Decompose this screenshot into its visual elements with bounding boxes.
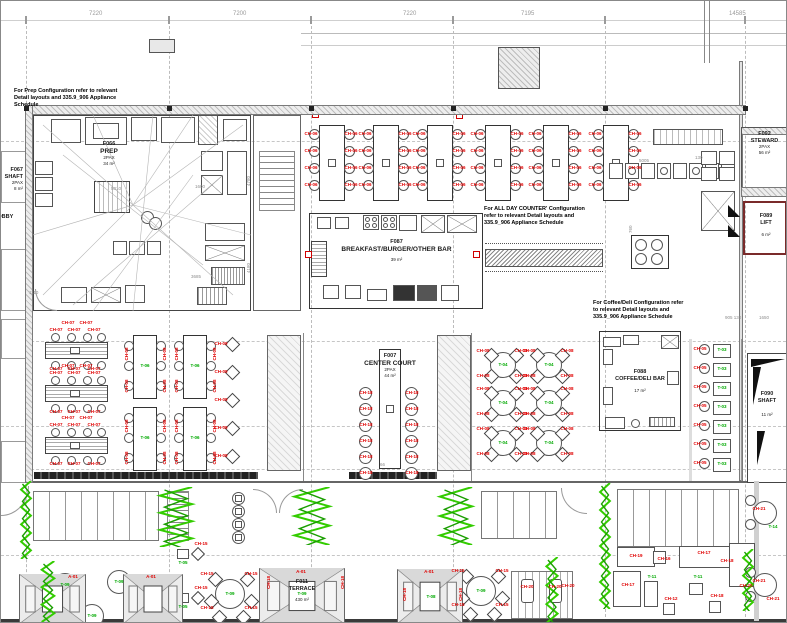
- chair-label-ch08: CH-08: [557, 452, 577, 457]
- chair-label-ch07: CH-07: [47, 328, 65, 333]
- chair-label-ch08: CH-08: [163, 347, 168, 361]
- plant: [287, 487, 337, 545]
- room-area: 56 m²: [742, 150, 787, 155]
- table-label-t03: T-03: [714, 386, 730, 391]
- chair-label-ch07: CH-07: [85, 328, 103, 333]
- chair-label-ch20: CH-20: [516, 585, 538, 590]
- edge-round-table: [753, 573, 777, 597]
- left-room: [1, 319, 27, 359]
- grid-line-horizontal: [1, 469, 786, 470]
- chair-label-ch21: CH-21: [749, 579, 769, 584]
- table-label-t04: T-04: [538, 441, 560, 446]
- bb-burner: [372, 223, 377, 228]
- kitchen-box: [719, 167, 735, 181]
- table-label-t14: T-14: [765, 525, 781, 530]
- bb-equip: [367, 289, 387, 301]
- kitchen-box: [701, 151, 717, 165]
- chair-label-ch18: CH-18: [356, 407, 376, 412]
- cooktop-burner: [651, 253, 663, 265]
- line: [29, 481, 747, 483]
- chair-label-ch06: CH-06: [507, 166, 527, 171]
- chair: [67, 428, 76, 437]
- room-label-terrace: F011 TERRACE T-09 430 m²: [267, 579, 337, 602]
- chair: [156, 433, 166, 443]
- door-arc: [253, 489, 277, 513]
- chair-label-ch06: CH-06: [585, 166, 605, 171]
- chair-label-ch05: CH-05: [691, 366, 709, 371]
- edge-round-table: [753, 501, 777, 525]
- chair-label-ch07: CH-07: [47, 462, 65, 467]
- note-coffee-deli: For Coffee/Deli Configuration refer to r…: [593, 300, 687, 321]
- dimension-annotation: 905 130: [725, 316, 741, 321]
- bb-xbox: [421, 215, 445, 233]
- chair-label-ch08: CH-08: [473, 427, 493, 432]
- chair-label-ch08: CH-08: [163, 419, 168, 433]
- chair-label-ch08: CH-08: [473, 412, 493, 417]
- table-label-t04: T-04: [538, 401, 560, 406]
- chair-label-ch21: CH-21: [763, 597, 783, 602]
- table-label-t09: T-09: [83, 614, 101, 619]
- serving-counter: [485, 249, 603, 267]
- chair-label-ch08: CH-08: [473, 374, 493, 379]
- kitchen-pass: [653, 129, 723, 145]
- column-marker: [167, 106, 172, 111]
- left-room: [1, 249, 27, 311]
- terrace-small-table: [177, 549, 189, 559]
- chair-label-ch08: CH-08: [125, 451, 130, 465]
- table-label-t03: T-03: [714, 367, 730, 372]
- counter-table-leg: [328, 159, 336, 167]
- awning-pyramid: [123, 574, 183, 623]
- chair-label-ch07: CH-07: [77, 321, 95, 326]
- chair-label-ch15: CH-15: [196, 572, 218, 577]
- planter: [267, 335, 301, 471]
- chair-label-ch18: CH-18: [341, 579, 346, 589]
- dim-top-2: 7200: [233, 11, 246, 17]
- chair-label-ch09: CH-09: [213, 398, 229, 403]
- room-label-shaft-right: F090 SHAFT 11 m²: [748, 391, 786, 418]
- room-name: CENTER COURT: [347, 360, 433, 368]
- room-name: SHAFT: [748, 398, 786, 405]
- chair-label-ch06: CH-06: [409, 183, 429, 188]
- room-label-coffee-deli: F088 COFFEE/DELI BAR 17 m²: [601, 369, 679, 394]
- chair-label-ch18: CH-18: [402, 455, 422, 460]
- dim-top-5: 14585: [729, 11, 746, 17]
- table-label-t11: T-11: [689, 575, 707, 580]
- column-marker: [603, 106, 608, 111]
- table-label-t11: T-11: [643, 575, 661, 580]
- bb-xbox: [447, 215, 477, 233]
- chair-label-ch06: CH-06: [565, 166, 585, 171]
- bb-equip: [345, 285, 361, 299]
- chair-label-ch07: CH-07: [77, 416, 95, 421]
- table-label-t08: T-08: [423, 595, 439, 600]
- table-label-t03: T-03: [714, 424, 730, 429]
- chair-label-ch15: CH-15: [447, 603, 469, 608]
- chair-label-ch08: CH-08: [125, 379, 130, 393]
- bb-burner: [383, 223, 388, 228]
- chair-label-ch18: CH-18: [459, 591, 464, 601]
- awning-label-a01: A-01: [291, 570, 311, 575]
- chair-label-ch07: CH-07: [59, 416, 77, 421]
- chair-label-ch18: CH-18: [356, 439, 376, 444]
- chair-label-ch18: CH-18: [356, 455, 376, 460]
- awning-label-a01: A-01: [63, 575, 83, 580]
- room-id: F066: [83, 141, 135, 148]
- dimension-annotation: 5010: [111, 187, 121, 192]
- chair-label-ch06: CH-06: [525, 183, 545, 188]
- chair-label-ch06: CH-06: [409, 149, 429, 154]
- chair-label-ch08: CH-08: [519, 374, 539, 379]
- chair-label-ch18: CH-18: [356, 391, 376, 396]
- dimension-annotation: 1650: [759, 316, 769, 321]
- room-id: F092: [742, 131, 787, 138]
- table-label-t05: T-05: [175, 561, 191, 566]
- line: [310, 16, 312, 24]
- bb-equip: [335, 217, 349, 229]
- chair-label-ch18: CH-18: [402, 439, 422, 444]
- room-id: F087: [319, 239, 474, 246]
- planter: [437, 335, 471, 471]
- bb-coffee-machine: [393, 285, 415, 301]
- chair-label-ch19: CH-19: [625, 554, 647, 559]
- chair-label-ch06: CH-06: [585, 149, 605, 154]
- kitchen-burner: [692, 167, 700, 175]
- table-label-t04: T-04: [492, 401, 514, 406]
- lounge-stool: [709, 601, 721, 613]
- chair-label-ch07: CH-07: [47, 410, 65, 415]
- door-arc: [561, 488, 587, 514]
- chair-label-ch07: CH-07: [85, 462, 103, 467]
- chair-label-ch07: CH-07: [65, 371, 83, 376]
- chair-label-ch18: CH-18: [356, 471, 376, 476]
- chair-label-ch07: CH-07: [59, 364, 77, 369]
- chair-label-ch06: CH-06: [507, 132, 527, 137]
- chair-label-ch08: CH-08: [519, 412, 539, 417]
- chair-label-ch06: CH-06: [565, 149, 585, 154]
- chair-label-ch08: CH-08: [175, 347, 180, 361]
- bb-equip: [441, 285, 459, 301]
- chair-label-ch08: CH-08: [557, 412, 577, 417]
- chair-label-ch06: CH-06: [467, 132, 487, 137]
- dim-top-1: 7220: [89, 11, 102, 17]
- chair-label-ch06: CH-06: [409, 132, 429, 137]
- line: [303, 333, 304, 481]
- chair-label-ch06: CH-06: [449, 149, 469, 154]
- chair-label-ch06: CH-06: [507, 183, 527, 188]
- chair-label-ch06: CH-06: [355, 132, 375, 137]
- chair-label-ch06: CH-06: [301, 183, 321, 188]
- room-area: 11 m²: [748, 412, 786, 417]
- bb-burner: [383, 217, 388, 222]
- cd-equip: [603, 337, 621, 347]
- table-label-t09: T-09: [56, 583, 74, 588]
- chair-label-ch06: CH-06: [565, 132, 585, 137]
- chair: [83, 333, 92, 342]
- cd-equip: [605, 417, 625, 429]
- chair-label-ch20: CH-20: [736, 584, 756, 589]
- room-area: 17 m²: [601, 388, 679, 393]
- dimension-annotation: 3685: [191, 275, 201, 280]
- chair-label-ch08: CH-08: [557, 387, 577, 392]
- room-area: 8 m²: [0, 186, 23, 191]
- room-name: LIFT: [747, 220, 785, 227]
- room-id: F007: [347, 353, 433, 360]
- chair-label-ch07: CH-07: [47, 371, 65, 376]
- chair-label-ch05: CH-05: [691, 347, 709, 352]
- red-marker: [473, 251, 480, 258]
- chair: [83, 428, 92, 437]
- planter-pot-inner: [235, 534, 242, 541]
- room-name: STEWARD: [742, 138, 787, 145]
- line: [168, 16, 170, 24]
- chair-label-ch06: CH-06: [625, 132, 645, 137]
- room-name: SHAFT: [0, 174, 23, 181]
- line: [1, 20, 787, 21]
- line: [25, 16, 27, 24]
- room-label-lift: F089 LIFT 6 m²: [747, 213, 785, 238]
- chair-label-ch06: CH-06: [301, 166, 321, 171]
- lounge-stool: [663, 603, 675, 615]
- chair-label-ch06: CH-06: [467, 166, 487, 171]
- room-name: PREP: [83, 148, 135, 156]
- bb-burner: [390, 217, 395, 222]
- dimension-annotation: 760: [629, 225, 634, 233]
- table-label-t04: T-04: [492, 441, 514, 446]
- chair: [67, 376, 76, 385]
- line: [689, 339, 692, 481]
- chair-label-ch07: CH-07: [65, 423, 83, 428]
- chair-label-ch06: CH-06: [449, 183, 469, 188]
- chair: [83, 376, 92, 385]
- chair-label-ch08: CH-08: [473, 387, 493, 392]
- chair-label-ch08: CH-08: [473, 349, 493, 354]
- room-label-prep: F066 PREP 2PAX 34 m²: [83, 141, 135, 166]
- room-id: F088: [601, 369, 679, 376]
- plant: [153, 487, 199, 547]
- chair-label-ch06: CH-06: [625, 166, 645, 171]
- table-label-t04: T-04: [492, 363, 514, 368]
- chair-label-ch09: CH-09: [213, 454, 229, 459]
- chair-label-ch15: CH-15: [240, 572, 262, 577]
- room-id: F011: [267, 579, 337, 586]
- room-area: 430 m²: [267, 597, 337, 602]
- table-label-t06: T-06: [186, 436, 204, 441]
- shaft-wedge: [757, 431, 765, 465]
- counter-table-leg: [436, 159, 444, 167]
- chair-label-ch07: CH-07: [85, 423, 103, 428]
- bb-equip: [317, 217, 331, 229]
- chair-label-ch08: CH-08: [519, 387, 539, 392]
- cd-equip: [623, 335, 639, 345]
- chair-label-ch06: CH-06: [355, 149, 375, 154]
- line: [301, 45, 787, 46]
- chair-label-ch09: CH-09: [213, 342, 229, 347]
- chair-label-ch06: CH-06: [625, 149, 645, 154]
- chair-label-ch07: CH-07: [59, 321, 77, 326]
- table-label-t04: T-04: [538, 363, 560, 368]
- chair: [97, 428, 106, 437]
- cd-equip: [603, 349, 613, 365]
- room-name: BREAKFAST/BURGER/OTHER BAR: [319, 246, 474, 254]
- cd-xbox: [661, 335, 679, 349]
- line: [741, 339, 742, 481]
- chair: [745, 495, 756, 506]
- facade-wall-dark: [34, 472, 258, 479]
- cd-equip: [649, 417, 675, 427]
- chair-label-ch05: CH-05: [691, 461, 709, 466]
- bb-burner: [390, 223, 395, 228]
- dim-top-3: 7220: [403, 11, 416, 17]
- chair-label-ch08: CH-08: [519, 349, 539, 354]
- chair-label-ch18: CH-18: [402, 471, 422, 476]
- long-table-leg: [70, 390, 80, 397]
- chair-label-ch06: CH-06: [585, 132, 605, 137]
- room-area: 6 m²: [747, 232, 785, 237]
- room-label-lobby: LOBBY: [0, 214, 14, 221]
- kitchen-counter: [673, 163, 687, 179]
- chair-label-ch06: CH-06: [449, 132, 469, 137]
- chair-label-ch07: CH-07: [65, 462, 83, 467]
- bb-burner: [372, 217, 377, 222]
- kitchen-box: [701, 167, 717, 181]
- room-id: F089: [747, 213, 785, 220]
- column-marker: [309, 106, 314, 111]
- stair-wedge: [728, 225, 740, 237]
- chair: [124, 361, 134, 371]
- chair: [206, 433, 216, 443]
- dim-top-4: 7195: [521, 11, 534, 17]
- counter-table-leg: [552, 159, 560, 167]
- awning-label-a01: A-01: [419, 570, 439, 575]
- chair-label-ch08: CH-08: [175, 419, 180, 433]
- line: [744, 16, 746, 24]
- chair-label-ch09: CH-09: [213, 426, 229, 431]
- chair-label-ch08: CH-08: [125, 347, 130, 361]
- chair-label-ch07: CH-07: [77, 364, 95, 369]
- chair: [174, 361, 184, 371]
- bb-equip: [399, 215, 417, 231]
- room-id: F090: [748, 391, 786, 398]
- chair-diamond: [191, 591, 205, 605]
- room-label-breakfast-bar: F087 BREAKFAST/BURGER/OTHER BAR 39 m²: [319, 239, 474, 263]
- plant: [433, 487, 479, 545]
- awning-label-a01: A-01: [141, 575, 161, 580]
- chair-label-ch15: CH-15: [491, 569, 513, 574]
- chair-label-ch05: CH-05: [691, 385, 709, 390]
- chair-label-ch07: CH-07: [85, 410, 103, 415]
- dimension-annotation: 4180: [247, 263, 252, 273]
- chair-label-ch15: CH-15: [191, 542, 211, 547]
- line: [452, 16, 454, 24]
- chair-label-ch18: CH-18: [716, 559, 738, 564]
- chair-label-ch21: CH-21: [749, 507, 769, 512]
- plant: [598, 483, 612, 609]
- chair-label-ch16: CH-16: [653, 557, 675, 562]
- line: [1, 619, 787, 622]
- chair-label-ch18: CH-18: [402, 407, 422, 412]
- planter-pot-inner: [235, 508, 242, 515]
- column-marker: [451, 106, 456, 111]
- room-label-center-court: F007 CENTER COURT 2PAX 44 m²: [347, 353, 433, 378]
- room-id: F067: [0, 167, 23, 174]
- dotted-line: [485, 243, 603, 244]
- bb-coffee-machine: [417, 285, 437, 301]
- chair-label-ch07: CH-07: [65, 410, 83, 415]
- chair: [124, 433, 134, 443]
- service-box: [149, 39, 175, 53]
- canopy: [481, 491, 557, 539]
- chair-label-ch06: CH-06: [449, 166, 469, 171]
- table-label-t05: T-05: [175, 605, 191, 610]
- chair-label-ch08: CH-08: [473, 452, 493, 457]
- table-label-t03: T-03: [714, 348, 730, 353]
- chair-label-ch20: CH-20: [544, 585, 566, 590]
- line: [604, 16, 606, 24]
- dimension-annotation: 5005: [639, 159, 649, 164]
- chair-label-ch07: CH-07: [85, 371, 103, 376]
- chair-label-ch08: CH-08: [125, 419, 130, 433]
- chair-label-ch06: CH-06: [565, 183, 585, 188]
- chair-label-ch08: CH-08: [557, 427, 577, 432]
- column-marker: [743, 106, 748, 111]
- dimension-annotation: 1600: [195, 185, 205, 190]
- table-label-t06: T-06: [136, 364, 154, 369]
- planter-pot-inner: [235, 521, 242, 528]
- plant: [544, 557, 560, 623]
- cooktop-burner: [651, 239, 663, 251]
- table-label-t06: T-06: [136, 436, 154, 441]
- chair-label-ch05: CH-05: [691, 423, 709, 428]
- bb-burner: [365, 217, 370, 222]
- chair-label-ch08: CH-08: [213, 379, 218, 393]
- chair-label-ch15: CH-15: [191, 586, 211, 591]
- chair-label-ch09: CH-09: [213, 370, 229, 375]
- chair-label-ch06: CH-06: [301, 132, 321, 137]
- counter-table-leg: [382, 159, 390, 167]
- line: [301, 33, 787, 34]
- lounger: [521, 579, 534, 603]
- chair-label-ch07: CH-07: [65, 328, 83, 333]
- chair: [51, 428, 60, 437]
- chair-label-ch08: CH-08: [519, 452, 539, 457]
- long-table-leg: [70, 347, 80, 354]
- chair-label-ch07: CH-07: [47, 423, 65, 428]
- chair-label-ch08: CH-08: [557, 349, 577, 354]
- room-label-shaft-left: F067 SHAFT 2PAX 8 m²: [0, 167, 23, 191]
- room-service-corridor: [253, 115, 301, 311]
- canopy: [33, 491, 159, 541]
- line: [471, 333, 472, 481]
- chair-label-ch15: CH-15: [240, 606, 262, 611]
- room-area: 44 m²: [347, 373, 433, 378]
- chair: [51, 333, 60, 342]
- plant: [39, 561, 57, 622]
- table-label-t03: T-03: [714, 443, 730, 448]
- room-name: COFFEE/DELI BAR: [601, 376, 679, 383]
- chair-label-ch17: CH-17: [617, 583, 639, 588]
- chair-label-ch15: CH-15: [447, 569, 469, 574]
- chair-label-ch15: CH-15: [491, 603, 513, 608]
- chair-label-ch15: CH-15: [196, 606, 218, 611]
- chair-label-ch18: CH-18: [402, 423, 422, 428]
- kitchen-burner: [660, 167, 668, 175]
- room-label-steward: F092 STEWARD 2PAX 56 m²: [742, 131, 787, 155]
- chair-label-ch06: CH-06: [585, 183, 605, 188]
- chair-label-ch06: CH-06: [525, 166, 545, 171]
- canopy: [617, 489, 739, 547]
- chair-label-ch18: CH-18: [403, 591, 408, 601]
